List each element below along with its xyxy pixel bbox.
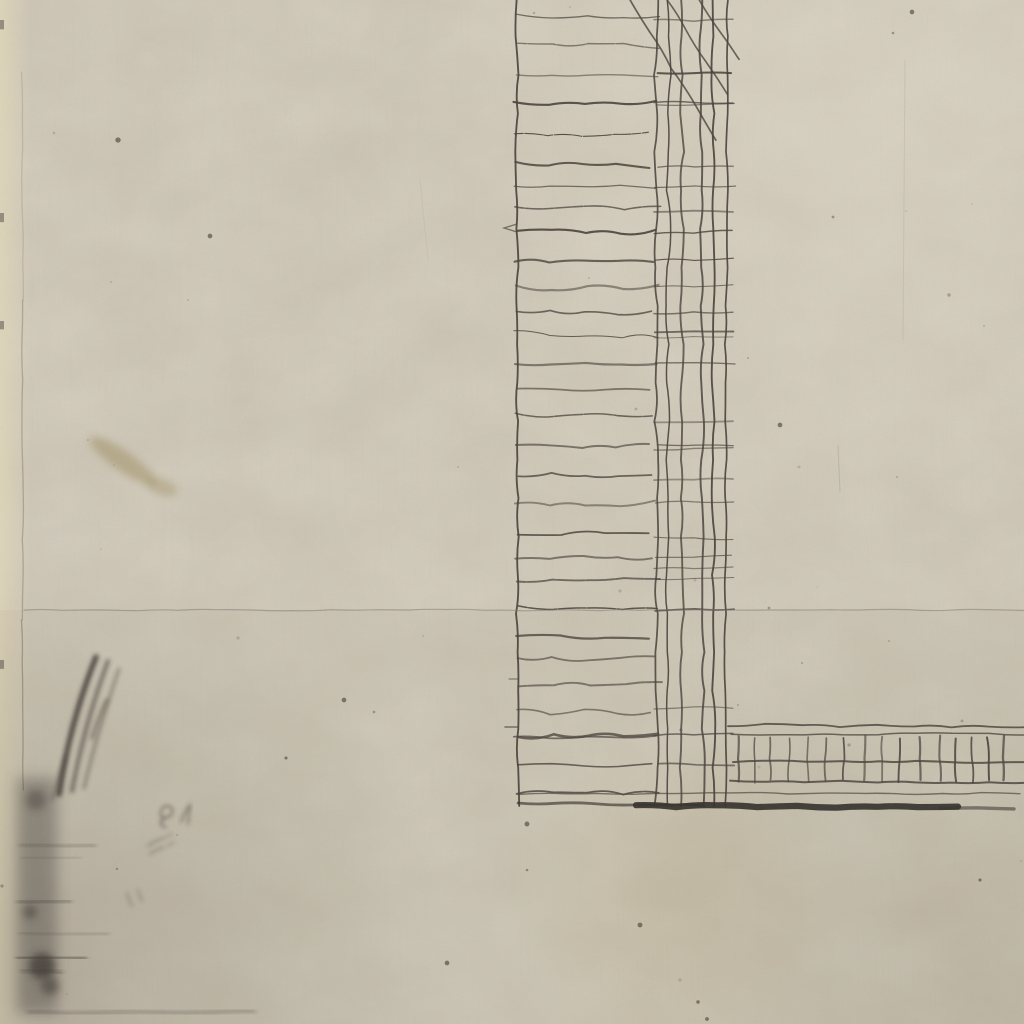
surface-grain: [0, 0, 1024, 1024]
grain-light: [0, 0, 1024, 1024]
etching-scan: [0, 0, 1024, 1024]
drawing-canvas: [0, 0, 1024, 1024]
